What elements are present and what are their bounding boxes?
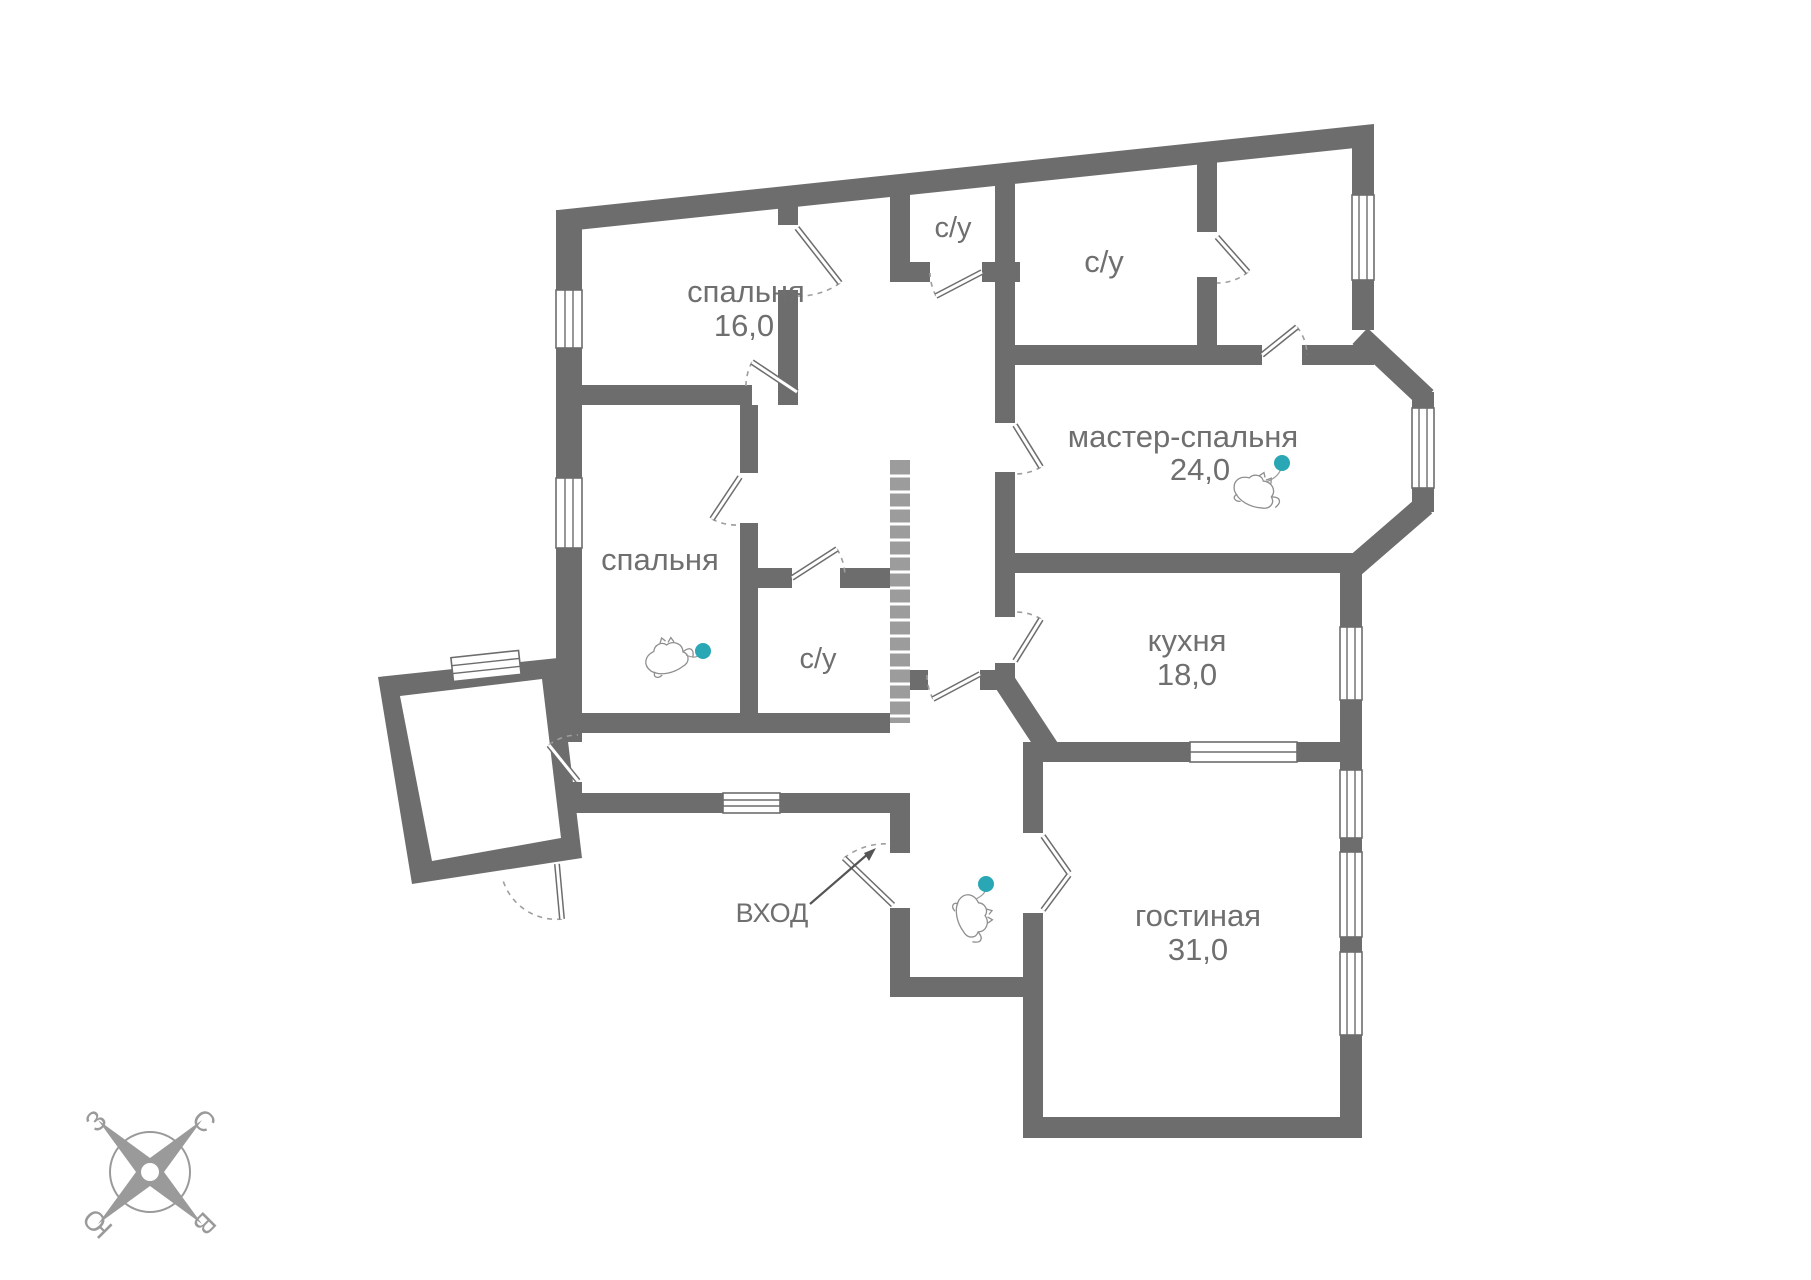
room-area-kitchen: 18,0 (1157, 657, 1217, 692)
toy-ball-dot (695, 643, 711, 659)
window (1352, 195, 1374, 280)
window (1340, 852, 1362, 937)
window (556, 290, 582, 348)
floor-plan-svg: спальня 16,0 спальня с/у с/у с/у мастер-… (0, 0, 1811, 1280)
door-swing (1262, 327, 1307, 355)
wall-opening (1190, 742, 1297, 762)
door-swing (1217, 237, 1248, 283)
room-area-bedroom1: 16,0 (714, 308, 774, 343)
door-swing (1015, 425, 1041, 474)
room-area-living: 31,0 (1168, 932, 1228, 967)
room-label-living: гостиная (1135, 898, 1261, 933)
entrance-arrow-icon (864, 848, 876, 861)
cat-icon (641, 631, 697, 679)
compass-rose: З С Ю В (76, 1103, 222, 1245)
room-label-bedroom2: спальня (601, 542, 719, 577)
room-label-master: мастер-спальня (1068, 419, 1298, 454)
door-swing (792, 549, 845, 578)
room-area-master: 24,0 (1170, 452, 1230, 487)
room-label-kitchen: кухня (1148, 623, 1227, 658)
window (1340, 952, 1362, 1035)
window (556, 478, 582, 548)
room-label-bathroom-small: с/у (799, 643, 837, 675)
window (723, 793, 780, 813)
door-swing (712, 477, 740, 525)
window (1340, 770, 1362, 838)
door-swing (930, 272, 982, 296)
toy-ball-dot (978, 876, 994, 892)
room-label-bedroom1: спальня (687, 274, 805, 309)
window (1340, 627, 1362, 700)
cat-icon (951, 890, 999, 946)
windows (451, 195, 1434, 1035)
door-swing (502, 864, 562, 919)
staircase (890, 460, 910, 723)
room-label-bathroom-top: с/у (934, 212, 972, 244)
entrance-label: ВХОД (736, 898, 809, 928)
toy-ball-dot (1274, 455, 1290, 471)
floor-plan-page: спальня 16,0 спальня с/у с/у с/у мастер-… (0, 0, 1811, 1280)
door-swing (927, 674, 980, 699)
french-door (1043, 836, 1069, 910)
room-labels: спальня 16,0 спальня с/у с/у с/у мастер-… (601, 212, 1298, 967)
entrance-annotation: ВХОД (736, 848, 876, 928)
door-swing (1015, 612, 1041, 661)
room-label-bathroom-big: с/у (1084, 244, 1124, 279)
window (1412, 408, 1434, 488)
decorations (641, 455, 1290, 946)
